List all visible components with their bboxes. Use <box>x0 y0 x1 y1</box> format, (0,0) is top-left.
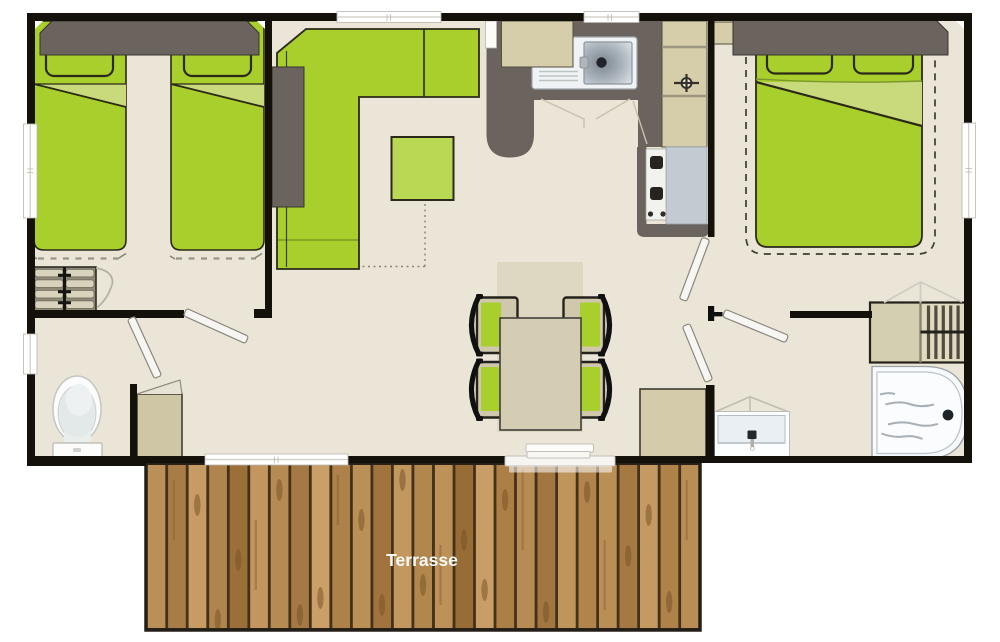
svg-text:Terrasse: Terrasse <box>386 550 458 570</box>
